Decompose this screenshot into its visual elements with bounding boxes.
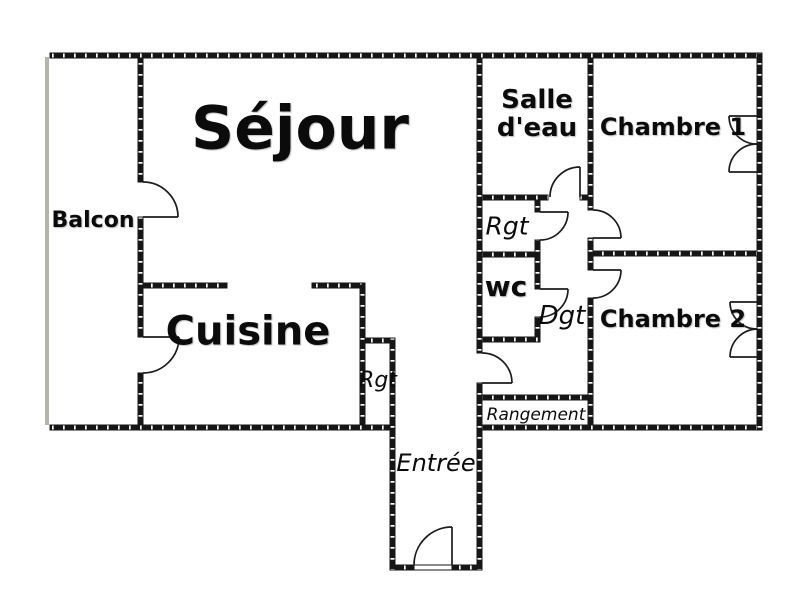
room-label-dgt: Dgt (539, 302, 586, 330)
wall-hall-left-upper (477, 58, 482, 353)
wall-salledeau-bottom-left (477, 195, 548, 200)
wall-rangement-top (477, 395, 593, 400)
room-label-rgt-hall: Rgt (485, 213, 528, 240)
wall-hall-left-lower (477, 383, 482, 570)
wall-exterior-bottom-right (477, 425, 762, 430)
room-label-rgt-cuisine: Rgt (359, 369, 397, 393)
wall-exterior-right (757, 53, 762, 430)
room-label-sejour: Séjour (191, 97, 409, 162)
wall-rgt-wc-divider (477, 252, 540, 257)
room-label-rangement: Rangement (487, 406, 586, 424)
wall-hall-right-upper (588, 58, 593, 210)
wall-balcon-middle (138, 217, 143, 337)
wall-chambre-divider (590, 251, 762, 256)
room-label-entree: Entrée (396, 451, 475, 477)
wall-entry-left (390, 425, 395, 570)
room-label-salle-deau-line2: d'eau (497, 114, 577, 142)
door-chambre2 (593, 270, 621, 298)
door-degagement (482, 353, 512, 383)
room-label-salle-deau-line1: Salle (497, 86, 577, 114)
doors (143, 167, 621, 565)
door-rgt-closet (540, 212, 568, 240)
door-salle-deau (550, 167, 580, 197)
wall-cuisine-right (360, 285, 365, 425)
wall-sejour-cuisine-right (312, 283, 365, 288)
wall-rgt-wc-right (535, 240, 540, 289)
wall-exterior-top (50, 53, 762, 58)
wall-sejour-cuisine-left (138, 283, 227, 288)
entry-threshold (414, 565, 452, 570)
wall-balcon-upper (138, 58, 143, 182)
room-label-salle-deau: Salle d'eau (497, 86, 577, 142)
door-entree (414, 527, 452, 565)
door-chambre1 (593, 210, 621, 238)
wall-hall-right-lower (588, 298, 593, 425)
room-label-chambre1: Chambre 1 (600, 115, 746, 141)
wall-hall-right-middle (588, 238, 593, 270)
wall-balcon-lower (138, 373, 143, 425)
door-sejour-balcon (143, 182, 178, 217)
balcony-outer-edge (45, 57, 49, 425)
floor-plan-drawing (0, 0, 800, 600)
floor-plan: Séjour Balcon Cuisine Salle d'eau Chambr… (0, 0, 800, 600)
room-label-balcon: Balcon (52, 209, 135, 233)
wall-rgt-right (535, 200, 540, 212)
room-label-wc: wc (485, 272, 527, 302)
wall-wc-bottom (477, 337, 540, 342)
room-label-chambre2: Chambre 2 (600, 307, 746, 333)
room-label-cuisine: Cuisine (166, 310, 331, 353)
wall-exterior-bottom-left (50, 425, 395, 430)
